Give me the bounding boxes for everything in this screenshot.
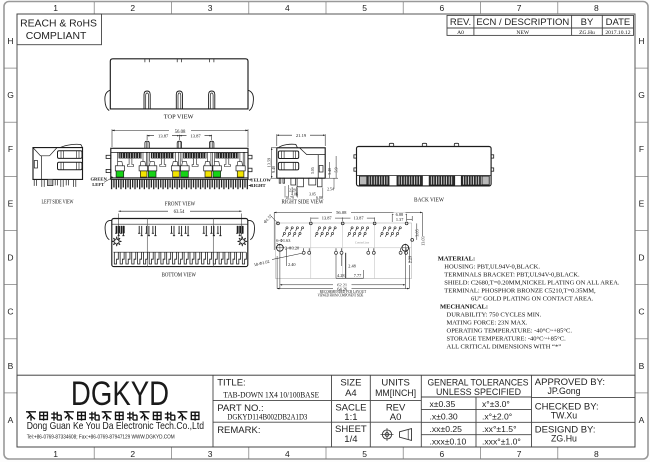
svg-text:LEFT SIDE VIEW: LEFT SIDE VIEW xyxy=(42,198,74,205)
svg-text:B: B xyxy=(639,361,645,371)
svg-text:21.19: 21.19 xyxy=(296,133,307,138)
svg-text:6: 6 xyxy=(440,449,445,459)
svg-text:3.05: 3.05 xyxy=(309,192,316,196)
svg-text:.xxx±0.10: .xxx±0.10 xyxy=(430,436,467,446)
svg-text:TERMINAL: PHOSPHOR BRONZE C521: TERMINAL: PHOSPHOR BRONZE C5210,T=0.35MM… xyxy=(444,288,596,295)
svg-text:COMPLIANT: COMPLIANT xyxy=(26,31,87,42)
svg-text:BOTTOM VIEW: BOTTOM VIEW xyxy=(162,271,197,278)
svg-text:1: 1 xyxy=(53,3,58,13)
svg-text:2.40: 2.40 xyxy=(288,262,296,267)
svg-text:13.87: 13.87 xyxy=(190,133,201,138)
svg-text:UNLESS SPECIFIED: UNLESS SPECIFIED xyxy=(436,387,521,398)
svg-text:TOP VIEW: TOP VIEW xyxy=(164,113,194,120)
svg-text:OPERATING TEMPERATURE: -40°C~+: OPERATING TEMPERATURE: -40°C~+85°C. xyxy=(447,328,573,335)
svg-text:E: E xyxy=(8,198,14,208)
svg-text:D: D xyxy=(7,253,13,263)
svg-text:.xx±0.25: .xx±0.25 xyxy=(430,424,463,434)
svg-text:B: B xyxy=(8,361,14,371)
svg-text:LEFT: LEFT xyxy=(92,182,104,187)
svg-text:3: 3 xyxy=(208,449,213,459)
svg-text:Tel:+86-0769-87334608; Fax:+86: Tel:+86-0769-87334608; Fax:+86-0769-8794… xyxy=(27,434,175,440)
svg-text:A: A xyxy=(8,415,14,425)
svg-text:7: 7 xyxy=(517,449,522,459)
svg-text:A0: A0 xyxy=(457,30,464,36)
svg-text:HOUSING: PBT,UL94V-0,BLACK.: HOUSING: PBT,UL94V-0,BLACK. xyxy=(444,264,540,271)
svg-text:.xx°±1.5°: .xx°±1.5° xyxy=(482,424,517,434)
svg-text:E: E xyxy=(639,198,645,208)
svg-text:MATERIAL:: MATERIAL: xyxy=(438,256,475,263)
svg-text:MM[INCH]: MM[INCH] xyxy=(375,388,416,398)
svg-text:.x°±2.0°: .x°±2.0° xyxy=(482,411,512,421)
svg-text:GREEN: GREEN xyxy=(90,177,107,182)
svg-text:SIZE: SIZE xyxy=(340,378,361,389)
svg-text:2.48: 2.48 xyxy=(348,263,356,268)
svg-text:H: H xyxy=(7,36,13,46)
svg-text:TERMINALS BRACKET: PBT,UL94V-0: TERMINALS BRACKET: PBT,UL94V-0,BLACK. xyxy=(444,272,580,279)
svg-text:ECN / DESCRIPTION: ECN / DESCRIPTION xyxy=(476,17,569,28)
svg-text:3.05: 3.05 xyxy=(310,167,315,174)
svg-text:ZG.Hu: ZG.Hu xyxy=(579,30,595,36)
svg-text:.xxx°±1.0°: .xxx°±1.0° xyxy=(482,436,521,446)
svg-text:RIGHT: RIGHT xyxy=(250,183,265,188)
svg-text:.x±0.30: .x±0.30 xyxy=(430,411,458,421)
svg-text:2017.10.12: 2017.10.12 xyxy=(605,30,630,36)
svg-text:VIEWED FROM COMPONENT SIDE: VIEWED FROM COMPONENT SIDE xyxy=(318,293,364,298)
svg-text:BACK VIEW: BACK VIEW xyxy=(414,197,444,204)
svg-text:56.08: 56.08 xyxy=(336,210,347,215)
svg-text:YELLOW: YELLOW xyxy=(250,177,271,182)
svg-text:9.40: 9.40 xyxy=(271,166,276,173)
svg-text:FRONT VIEW: FRONT VIEW xyxy=(165,200,196,207)
svg-text:6U" GOLD PLATING ON CONTACT AR: 6U" GOLD PLATING ON CONTACT AREA. xyxy=(471,296,594,303)
svg-text:7: 7 xyxy=(517,3,522,13)
svg-text:5: 5 xyxy=(362,3,367,13)
svg-text:5: 5 xyxy=(362,449,367,459)
svg-text:MATING FORCE: 23N MAX.: MATING FORCE: 23N MAX. xyxy=(447,320,528,327)
svg-text:C: C xyxy=(7,307,13,317)
svg-text:1:1: 1:1 xyxy=(344,412,357,423)
svg-text:13.87: 13.87 xyxy=(158,133,169,138)
svg-text:4.28: 4.28 xyxy=(337,273,345,278)
svg-text:REV.: REV. xyxy=(450,17,471,28)
svg-text:6: 6 xyxy=(440,3,445,13)
svg-text:A4: A4 xyxy=(345,388,357,399)
svg-text:REMARK:: REMARK: xyxy=(217,425,260,436)
svg-text:A: A xyxy=(639,415,645,425)
svg-text:NEW: NEW xyxy=(516,30,529,36)
svg-text:13.87: 13.87 xyxy=(322,216,333,221)
svg-text:4: 4 xyxy=(285,449,290,459)
svg-text:8: 8 xyxy=(594,3,599,13)
svg-text:13.03: 13.03 xyxy=(421,236,426,245)
svg-text:MECHANICAL:: MECHANICAL: xyxy=(440,304,488,311)
svg-text:56.08: 56.08 xyxy=(175,130,186,135)
svg-text:4: 4 xyxy=(285,3,290,13)
svg-text:F: F xyxy=(8,144,13,154)
svg-text:Dong Guan Ke You Da Electronic: Dong Guan Ke You Da Electronic Tech.Co.,… xyxy=(27,421,205,432)
svg-text:7.77: 7.77 xyxy=(354,273,362,278)
svg-text:BY: BY xyxy=(581,17,594,28)
svg-text:1.37: 1.37 xyxy=(396,217,404,222)
svg-text:DGKYD114B002DB2A1D3: DGKYD114B002DB2A1D3 xyxy=(227,413,307,422)
svg-text:13.59: 13.59 xyxy=(267,158,272,167)
svg-text:H: H xyxy=(638,36,644,46)
svg-text:13.87: 13.87 xyxy=(354,216,365,221)
svg-text:TW.Xu: TW.Xu xyxy=(551,410,578,420)
svg-text:3: 3 xyxy=(208,3,213,13)
svg-text:2.54: 2.54 xyxy=(327,187,334,191)
svg-text:2: 2 xyxy=(130,3,135,13)
svg-text:TITLE:: TITLE: xyxy=(217,378,246,389)
svg-text:6-Φ1.63: 6-Φ1.63 xyxy=(276,238,290,243)
svg-text:2: 2 xyxy=(130,449,135,459)
svg-text:D: D xyxy=(638,253,644,263)
svg-text:CenterLine: CenterLine xyxy=(355,241,370,245)
svg-text:x°±3.0°: x°±3.0° xyxy=(482,399,510,409)
svg-text:DURABILITY: 750 CYCLES MIN.: DURABILITY: 750 CYCLES MIN. xyxy=(447,312,542,319)
svg-text:G: G xyxy=(7,90,14,100)
svg-text:3.40: 3.40 xyxy=(327,168,332,175)
svg-text:63.54: 63.54 xyxy=(174,210,185,215)
svg-text:F: F xyxy=(639,144,644,154)
svg-text:TAB-DOWN 1X4 10/100BASE: TAB-DOWN 1X4 10/100BASE xyxy=(223,390,319,399)
svg-text:JP.Gong: JP.Gong xyxy=(547,386,580,396)
svg-text:REACH & RoHS: REACH & RoHS xyxy=(20,18,97,29)
svg-text:C: C xyxy=(638,307,644,317)
svg-text:ZG.Hu: ZG.Hu xyxy=(551,434,577,444)
svg-text:3.05: 3.05 xyxy=(415,229,420,236)
svg-text:8: 8 xyxy=(594,449,599,459)
svg-text:DATE: DATE xyxy=(606,17,631,28)
svg-text:2-Φ3.20: 2-Φ3.20 xyxy=(285,246,299,251)
svg-text:STORAGE TEMPERATURE: -40°C~+85: STORAGE TEMPERATURE: -40°C~+85°C. xyxy=(447,336,567,343)
svg-text:DGKYD: DGKYD xyxy=(71,374,169,413)
svg-text:G: G xyxy=(638,90,645,100)
svg-text:A0: A0 xyxy=(390,412,402,423)
svg-text:5.9: 5.9 xyxy=(333,168,338,173)
svg-text:x±0.35: x±0.35 xyxy=(430,399,456,409)
svg-text:2.29: 2.29 xyxy=(408,256,413,263)
svg-text:1: 1 xyxy=(53,449,58,459)
svg-text:SHIELD: C2680,T=0.20MM,NICKEL: SHIELD: C2680,T=0.20MM,NICKEL PLATING ON… xyxy=(444,280,620,287)
svg-text:ALL CRITICAL DIMENSIONS WITH “: ALL CRITICAL DIMENSIONS WITH “*” xyxy=(447,344,562,351)
svg-text:RIGHT SIDE VIEW: RIGHT SIDE VIEW xyxy=(282,198,324,205)
svg-text:1/4: 1/4 xyxy=(344,434,357,445)
